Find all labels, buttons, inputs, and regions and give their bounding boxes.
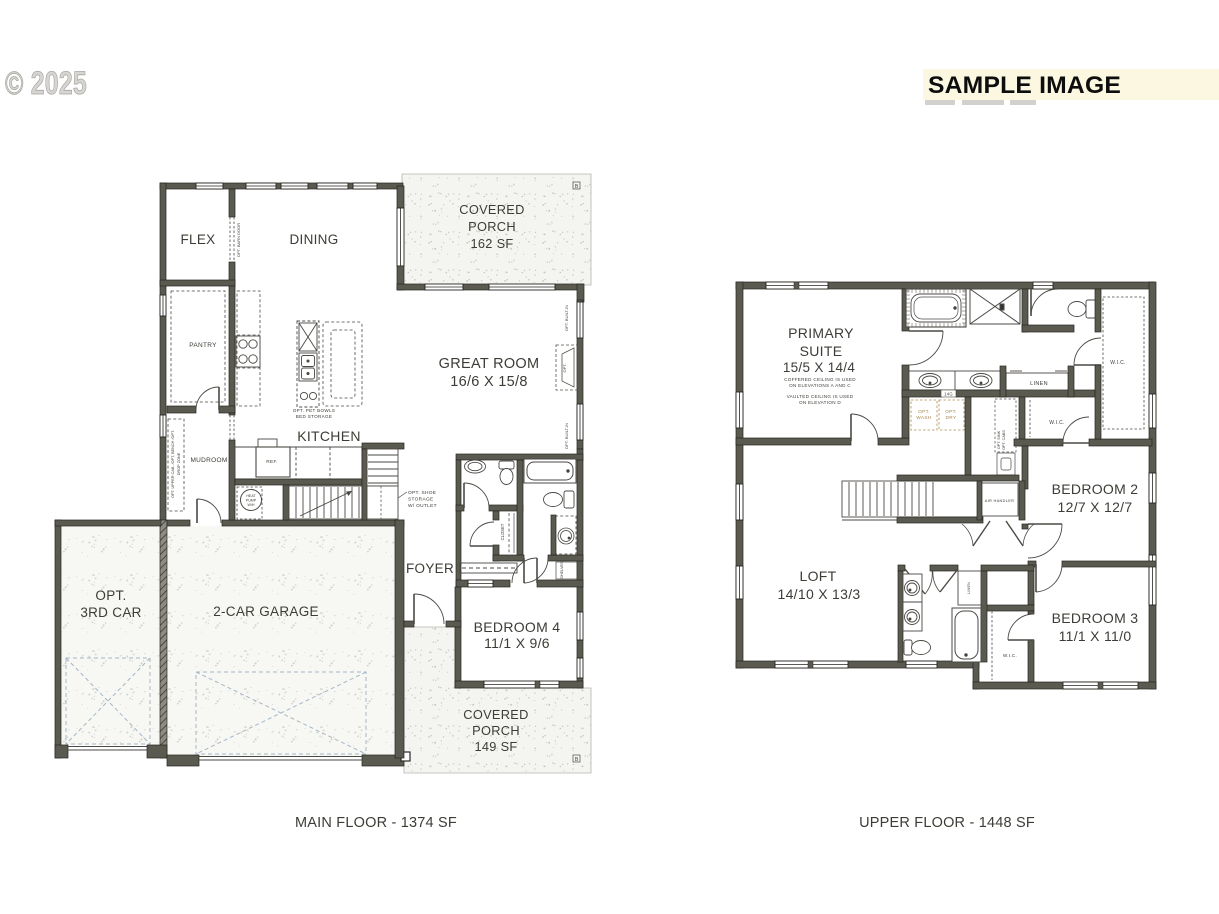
svg-text:PRIMARY: PRIMARY <box>788 325 854 341</box>
svg-text:12/7 X 12/7: 12/7 X 12/7 <box>1058 499 1133 515</box>
svg-text:PORCH: PORCH <box>472 723 520 738</box>
svg-text:LINEN: LINEN <box>1030 381 1048 387</box>
svg-text:PUMP: PUMP <box>246 499 257 503</box>
svg-text:MUDROOM: MUDROOM <box>190 457 227 464</box>
svg-text:14/10 X 13/3: 14/10 X 13/3 <box>778 586 861 602</box>
svg-text:HEAT: HEAT <box>246 494 256 498</box>
svg-text:CLOSET: CLOSET <box>500 523 505 540</box>
svg-text:OPT.: OPT. <box>95 588 126 603</box>
svg-text:14G: 14G <box>944 392 953 397</box>
svg-text:ON ELEVATION D: ON ELEVATION D <box>799 400 841 405</box>
svg-text:OPT.: OPT. <box>918 409 930 415</box>
svg-text:DROP ZONE: DROP ZONE <box>177 452 181 475</box>
svg-text:W.I.C.: W.I.C. <box>1049 420 1064 426</box>
svg-text:OPT. CABS: OPT. CABS <box>1002 430 1006 450</box>
svg-text:162 SF: 162 SF <box>470 236 513 251</box>
svg-text:16/6 X 15/8: 16/6 X 15/8 <box>450 374 527 390</box>
svg-text:2-CAR GARAGE: 2-CAR GARAGE <box>213 604 319 619</box>
svg-text:15/5 X 14/4: 15/5 X 14/4 <box>783 360 856 375</box>
svg-text:WASH: WASH <box>916 415 932 421</box>
svg-text:BED STORAGE: BED STORAGE <box>296 414 332 419</box>
svg-text:FOYER: FOYER <box>406 561 454 576</box>
svg-text:SHELVES: SHELVES <box>560 561 564 579</box>
svg-text:W.I.C.: W.I.C. <box>1110 360 1125 366</box>
svg-text:LOFT: LOFT <box>800 568 837 584</box>
svg-text:REF.: REF. <box>266 459 278 465</box>
svg-text:DRY: DRY <box>946 415 957 421</box>
svg-text:MAIN FLOOR - 1374 SF: MAIN FLOOR - 1374 SF <box>295 815 457 831</box>
svg-text:W/H: W/H <box>248 503 255 507</box>
svg-text:BEDROOM 2: BEDROOM 2 <box>1052 481 1139 497</box>
svg-text:149 SF: 149 SF <box>474 739 517 754</box>
svg-text:OPT.: OPT. <box>945 409 957 415</box>
svg-text:OPT. BUILT-IN: OPT. BUILT-IN <box>564 423 569 449</box>
svg-text:PORCH: PORCH <box>468 219 516 234</box>
svg-text:KITCHEN: KITCHEN <box>297 428 361 444</box>
svg-text:STORAGE: STORAGE <box>408 497 433 503</box>
svg-text:COVERED: COVERED <box>463 707 528 722</box>
svg-text:OPT. BUILT-IN: OPT. BUILT-IN <box>564 305 569 331</box>
svg-text:ON ELEVATIONS A AND C: ON ELEVATIONS A AND C <box>789 383 851 388</box>
svg-text:© 2025: © 2025 <box>5 65 87 101</box>
svg-text:PANTRY: PANTRY <box>189 342 217 349</box>
svg-text:SUITE: SUITE <box>800 343 843 359</box>
svg-text:AIR HANDLER: AIR HANDLER <box>985 498 1014 503</box>
svg-text:W.I.C.: W.I.C. <box>1003 653 1017 658</box>
svg-text:OPT. BARN DOOR: OPT. BARN DOOR <box>236 223 241 257</box>
svg-text:LINEN: LINEN <box>966 582 971 594</box>
svg-text:BEDROOM 4: BEDROOM 4 <box>474 619 561 635</box>
svg-text:W/ OUTLET: W/ OUTLET <box>408 503 437 509</box>
svg-text:VAULTED CEILING IS USED: VAULTED CEILING IS USED <box>787 394 854 399</box>
svg-text:SAMPLE IMAGE: SAMPLE IMAGE <box>928 72 1121 99</box>
svg-text:OPT.: OPT. <box>562 364 567 373</box>
svg-text:11/1 X 11/0: 11/1 X 11/0 <box>1059 628 1132 644</box>
svg-text:COVERED: COVERED <box>459 202 524 217</box>
svg-text:OPT. PET BOWLS: OPT. PET BOWLS <box>293 408 335 413</box>
svg-text:11/1 X 9/6: 11/1 X 9/6 <box>484 635 550 651</box>
svg-text:GREAT ROOM: GREAT ROOM <box>439 356 540 372</box>
svg-text:3RD CAR: 3RD CAR <box>80 605 141 620</box>
svg-text:DINING: DINING <box>289 232 338 247</box>
svg-text:OPT. SHOE: OPT. SHOE <box>408 490 436 496</box>
svg-text:OPT. SINK: OPT. SINK <box>997 430 1001 449</box>
svg-text:FLEX: FLEX <box>181 232 216 247</box>
svg-text:UPPER FLOOR - 1448 SF: UPPER FLOOR - 1448 SF <box>859 815 1035 831</box>
svg-text:BEDROOM 3: BEDROOM 3 <box>1052 610 1139 626</box>
svg-text:OPT. UPPER CAB. /OPT. BENCH /O: OPT. UPPER CAB. /OPT. BENCH /OPT. <box>171 430 175 498</box>
svg-text:COFFERED CEILING IS USED: COFFERED CEILING IS USED <box>784 377 856 382</box>
